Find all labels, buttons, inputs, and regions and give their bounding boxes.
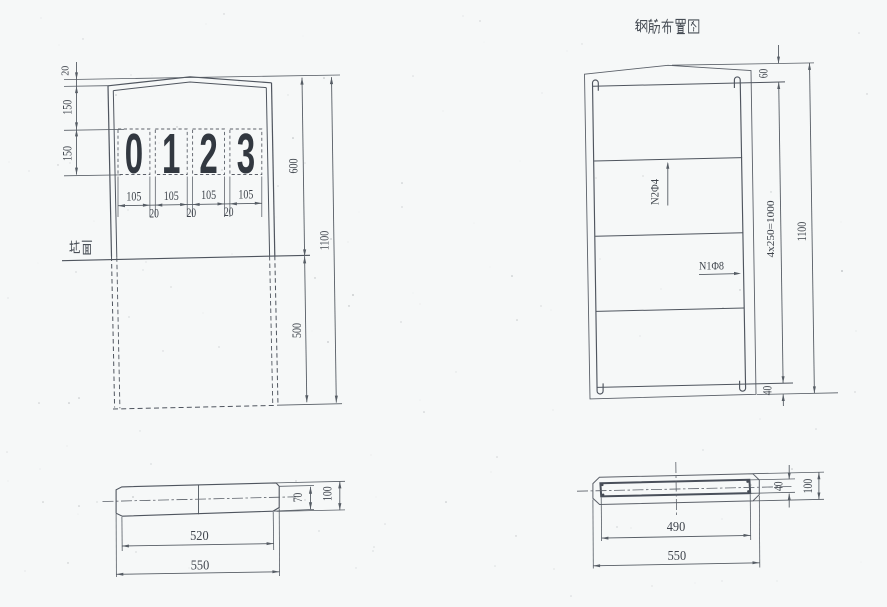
svg-text:105: 105: [201, 188, 216, 202]
svg-text:4x250=1000: 4x250=1000: [766, 201, 777, 258]
svg-text:600: 600: [287, 159, 301, 174]
svg-text:520: 520: [190, 529, 209, 544]
svg-text:550: 550: [191, 558, 210, 573]
svg-text:N1Φ8: N1Φ8: [699, 258, 724, 272]
svg-text:105: 105: [164, 189, 179, 203]
svg-text:3: 3: [237, 122, 255, 186]
svg-text:150: 150: [61, 146, 75, 161]
svg-text:70: 70: [291, 493, 305, 503]
svg-text:0: 0: [125, 122, 143, 186]
svg-text:1100: 1100: [318, 231, 332, 251]
svg-text:60: 60: [757, 69, 771, 79]
svg-text:105: 105: [126, 190, 141, 204]
svg-text:20: 20: [60, 65, 72, 75]
svg-text:500: 500: [290, 323, 304, 338]
svg-text:100: 100: [801, 479, 815, 494]
svg-text:40: 40: [772, 482, 786, 492]
svg-text:N2Φ4: N2Φ4: [648, 179, 662, 205]
svg-text:20: 20: [149, 207, 159, 221]
svg-text:150: 150: [61, 100, 75, 115]
svg-text:1: 1: [162, 122, 180, 186]
svg-text:2: 2: [199, 122, 217, 186]
svg-text:105: 105: [238, 187, 253, 201]
svg-text:1100: 1100: [795, 222, 809, 242]
svg-text:100: 100: [321, 486, 335, 501]
svg-text:20: 20: [187, 206, 197, 220]
svg-text:20: 20: [224, 205, 234, 219]
svg-text:490: 490: [667, 520, 686, 535]
svg-text:550: 550: [668, 549, 687, 564]
